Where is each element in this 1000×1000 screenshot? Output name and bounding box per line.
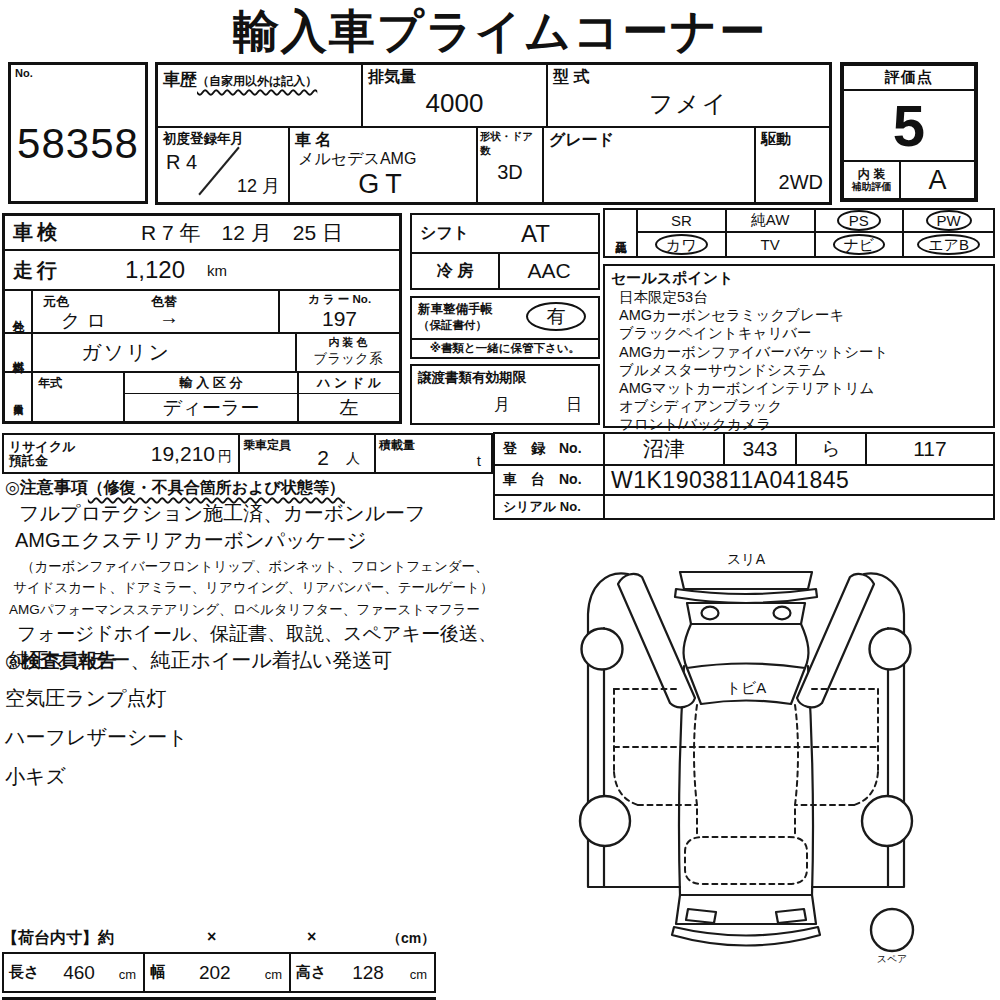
inspection-row: 車検 R 7 年 12 月 25 日 — [5, 216, 399, 251]
lot-number-box: No. 58358 — [8, 62, 148, 204]
note-line: フルプロテクション施工済、カーボンルーフ — [5, 500, 565, 527]
cargo-x1: × — [207, 928, 216, 946]
recycle-label-2: 預託金 — [9, 454, 76, 468]
color-change-value: → — [159, 306, 179, 329]
load-unit: t — [477, 452, 481, 469]
grade-cell: グレード — [544, 128, 756, 202]
transfer-month-label: 月 — [494, 395, 510, 416]
recycle-value: 19,210 — [151, 442, 215, 466]
car-name-line2: GT — [290, 169, 476, 200]
cargo-width-value: 202 — [165, 962, 265, 984]
genuine-item-airbag: エアB — [904, 233, 993, 256]
sales-points-header: セールスポイント — [605, 266, 993, 288]
front-left-wheel — [582, 629, 623, 670]
model-code-value: フメイ — [548, 65, 829, 126]
sales-point-line: ブルメスターサウンドシステム — [619, 361, 993, 379]
sales-point-line: AMGカーボンセラミックブレーキ — [619, 306, 993, 324]
service-book-box: 新車整備手帳 （保証書付） 有 ※書類と一緒に保管下さい。 — [410, 296, 600, 359]
sales-point-line: フロント/バックカメラ — [619, 415, 993, 433]
mileage-label: 走行 — [5, 257, 125, 284]
cargo-header-row: 【荷台内寸】約 × × （cm） — [2, 928, 438, 950]
base-color-value: クロ — [61, 308, 112, 334]
cargo-width-label: 幅 — [145, 963, 165, 982]
note-line: AMGエクステリアカーボンパッケージ — [5, 527, 565, 554]
cargo-x2: × — [307, 928, 316, 946]
interior-rating-label-2: 補助評価 — [852, 181, 892, 193]
color-no-value: 197 — [280, 307, 399, 331]
inspector-report-section: ◎検査員報告 空気圧ランプ点灯 ハーフレザーシート 小キズ — [5, 648, 425, 790]
transfer-docs-label: 譲渡書類有効期限 — [418, 369, 526, 387]
registration-class: 343 — [725, 434, 797, 464]
lot-number-label: No. — [15, 67, 33, 79]
model-code-label: 型 式 — [553, 67, 589, 88]
service-book-label-1: 新車整備手帳 — [418, 301, 493, 318]
notes-header: ◎注意事項 — [5, 478, 88, 497]
year-model-label: 年式 — [38, 375, 62, 392]
drive-value: 2WD — [779, 171, 823, 194]
mileage-value: 1,120 — [125, 256, 185, 284]
sales-point-line: 日本限定53台 — [619, 288, 993, 306]
import-row: 輸入車用 年式 輸 入 区 分 ディーラー ハ ン ド ル 左 — [5, 373, 399, 421]
notes-section: ◎注意事項（修復・不具合箇所および状態等） フルプロテクション施工済、カーボンル… — [5, 476, 565, 674]
note-line: AMGパフォーマンスステアリング、ロベルタリフター、ファーストマフラー — [5, 601, 565, 619]
rating-box: 評価点 5 内 装 補助評価 A — [840, 62, 978, 202]
slash-divider — [198, 147, 239, 196]
registration-kana: ら — [797, 434, 867, 464]
interior-rating-label-1: 内 装 — [858, 167, 885, 181]
first-registration-label: 初度登録年月 — [163, 130, 244, 148]
car-name-label: 車 名 — [295, 130, 331, 151]
grade-label: グレード — [549, 130, 614, 151]
sales-point-line: オブシディアンブラック — [619, 397, 993, 415]
auction-sheet-page: { "title": "輸入車プライムコーナー", "no_box": {"la… — [0, 0, 1000, 1000]
chassis-number-row: 車 台 No. W1K1903811A041845 — [495, 466, 993, 496]
service-book-note: ※書類と一緒に保管下さい。 — [412, 338, 598, 357]
shift-value: AT — [521, 220, 550, 248]
vehicle-spec-table: 車歴（自家用以外は記入） 排気量 4000 型 式 フメイ 初度登録年月 R 4… — [155, 62, 832, 205]
service-book-label-2: （保証書付） — [418, 318, 493, 333]
rear-left-wheel — [580, 796, 630, 846]
shift-aircon-box: シフト AT 冷 房 AAC — [410, 213, 600, 290]
sales-point-line: AMGカーボンファイバーバケットシート — [619, 343, 993, 361]
car-damage-diagram: スリA トビA スペア — [570, 548, 1000, 998]
import-use-label: 輸入車用 — [5, 373, 33, 421]
note-line: サイドスカート、ドアミラー、リアウイング、リアバンパー、テールゲート） — [5, 579, 565, 597]
spare-tire — [871, 909, 913, 951]
cargo-header: 【荷台内寸】約 — [2, 928, 114, 949]
cargo-length-value: 460 — [39, 962, 118, 984]
registration-label: 登 録 No. — [495, 434, 605, 464]
genuine-item-tv: TV — [727, 233, 816, 256]
inspector-report-header: ◎検査員報告 — [5, 648, 425, 674]
cargo-width-unit: cm — [265, 963, 289, 982]
history-cell: 車歴（自家用以外は記入） — [158, 65, 363, 126]
fuel-value: ガソリン — [33, 339, 171, 366]
registration-area: 沼津 — [605, 434, 725, 464]
steering-value: 左 — [299, 394, 399, 421]
front-damage-label: スリA — [727, 551, 766, 567]
drive-cell: 駆動 2WD — [756, 128, 829, 202]
cargo-height-label: 高さ — [291, 963, 326, 982]
displacement-label: 排気量 — [368, 67, 416, 88]
interior-rating-grade: A — [901, 162, 974, 198]
mileage-unit: km — [207, 262, 227, 279]
capacity-value: 2 — [317, 446, 329, 470]
note-line: （カーボンファイバーフロントリップ、ボンネット、フロントフェンダー、 — [5, 558, 565, 576]
import-type-label: 輸 入 区 分 — [125, 373, 297, 394]
cargo-dimensions-table: 長さ 460 cm 幅 202 cm 高さ 128 cm — [2, 952, 436, 993]
genuine-parts-box: 純正品 SR 純AW PS PW カワ TV ナビ エアB — [603, 208, 995, 258]
inspection-value: R 7 年 12 月 25 日 — [89, 219, 399, 247]
import-type-value: ディーラー — [125, 394, 297, 421]
recycle-unit: 円 — [218, 448, 232, 466]
recycle-label-1: リサイクル — [9, 440, 76, 454]
note-line: フォージドホイール、保証書、取説、スペアキー後送、 — [5, 621, 565, 647]
cargo-unit-note: （cm） — [387, 930, 435, 948]
fuel-row: 燃料 ガソリン 内 装 色 ブラック系 — [5, 334, 399, 373]
serial-number-row: シリアル No. — [495, 496, 993, 518]
inspector-report-line: 空気圧ランプ点灯 — [5, 685, 425, 712]
fuel-label: 燃料 — [5, 334, 33, 371]
spare-tire-label: スペア — [877, 953, 908, 964]
inspector-report-line: 小キズ — [5, 763, 425, 790]
car-name-line1: メルセデスAMG — [298, 149, 416, 170]
serial-value — [605, 496, 993, 518]
inspection-label: 車検 — [5, 219, 89, 246]
genuine-item-ps: PS — [816, 210, 905, 233]
rear-bumper — [672, 927, 820, 946]
sales-point-line: AMGマットカーボンインテリアトリム — [619, 379, 993, 397]
aircon-label: 冷 房 — [412, 254, 500, 288]
cargo-length-unit: cm — [119, 963, 143, 982]
inspector-report-line: ハーフレザーシート — [5, 724, 425, 751]
color-no-label: カ ラ ー No. — [280, 291, 399, 307]
aircon-value: AAC — [500, 254, 598, 288]
load-label: 積載量 — [379, 437, 415, 454]
rating-score: 5 — [844, 91, 974, 160]
interior-color-value: ブラック系 — [297, 350, 399, 368]
first-registration-year: R 4 — [166, 151, 197, 174]
model-code-cell: 型 式 フメイ — [548, 65, 829, 126]
lot-number-value: 58358 — [11, 65, 145, 201]
mileage-row: 走行 1,120 km — [5, 251, 399, 291]
cargo-length-label: 長さ — [4, 963, 39, 982]
rating-label: 評価点 — [844, 66, 974, 91]
rear-right-wheel — [862, 796, 912, 846]
capacity-unit: 人 — [346, 450, 360, 468]
drive-label: 駆動 — [761, 130, 791, 149]
sales-points-box: セールスポイント 日本限定53台 AMGカーボンセラミックブレーキ ブラックペイ… — [603, 264, 995, 428]
shift-label: シフト — [412, 223, 469, 244]
sales-point-line: ブラックペイントキャリバー — [619, 324, 993, 342]
chassis-value: W1K1903811A041845 — [605, 466, 993, 494]
transfer-docs-box: 譲渡書類有効期限 月 日 — [410, 364, 600, 425]
genuine-item-sr: SR — [638, 210, 727, 233]
front-bumper — [680, 572, 812, 589]
history-note: （自家用以外は記入） — [197, 74, 317, 88]
capacity-label: 乗車定員 — [243, 437, 291, 454]
car-name-cell: 車 名 メルセデスAMG GT — [290, 128, 478, 202]
registration-number: 117 — [867, 434, 993, 464]
genuine-item-navi: ナビ — [816, 233, 905, 256]
steering-label: ハ ン ド ル — [299, 373, 399, 394]
first-registration-cell: 初度登録年月 R 4 12 月 — [158, 128, 290, 202]
genuine-item-pw: PW — [904, 210, 993, 233]
service-book-value: 有 — [526, 302, 586, 331]
exterior-color-row: 外色 元色 色替 クロ → カ ラ ー No. 197 — [5, 291, 399, 334]
recycle-deposit-box: リサイクル 預託金 19,210 円 乗車定員 2 人 積載量 t — [2, 433, 493, 474]
interior-color-label: 内 装 色 — [297, 334, 399, 350]
body-doors-label: 形状・ドア数 — [480, 130, 542, 158]
exterior-color-label: 外色 — [5, 291, 33, 332]
vehicle-detail-table: 車検 R 7 年 12 月 25 日 走行 1,120 km 外色 元色 色替 … — [2, 213, 402, 424]
front-right-wheel — [870, 629, 911, 670]
transfer-day-label: 日 — [566, 395, 582, 416]
genuine-parts-label: 純正品 — [605, 210, 638, 256]
windshield-damage-label: トビA — [726, 679, 767, 696]
notes-header-note: （修復・不具合箇所および状態等） — [88, 479, 345, 496]
registration-number-row: 登 録 No. 沼津 343 ら 117 — [495, 434, 993, 466]
first-registration-month: 12 月 — [237, 174, 280, 198]
cargo-height-value: 128 — [326, 962, 409, 984]
cargo-height-unit: cm — [410, 963, 434, 982]
history-label: 車歴 — [163, 70, 197, 89]
genuine-item-aw: 純AW — [727, 210, 816, 233]
page-title: 輸入車プライムコーナー — [0, 1, 1000, 63]
displacement-cell: 排気量 4000 — [363, 65, 548, 126]
registration-box: 登 録 No. 沼津 343 ら 117 車 台 No. W1K1903811A… — [493, 432, 995, 520]
body-doors-cell: 形状・ドア数 3D — [478, 128, 544, 202]
genuine-item-leather: カワ — [638, 233, 727, 256]
